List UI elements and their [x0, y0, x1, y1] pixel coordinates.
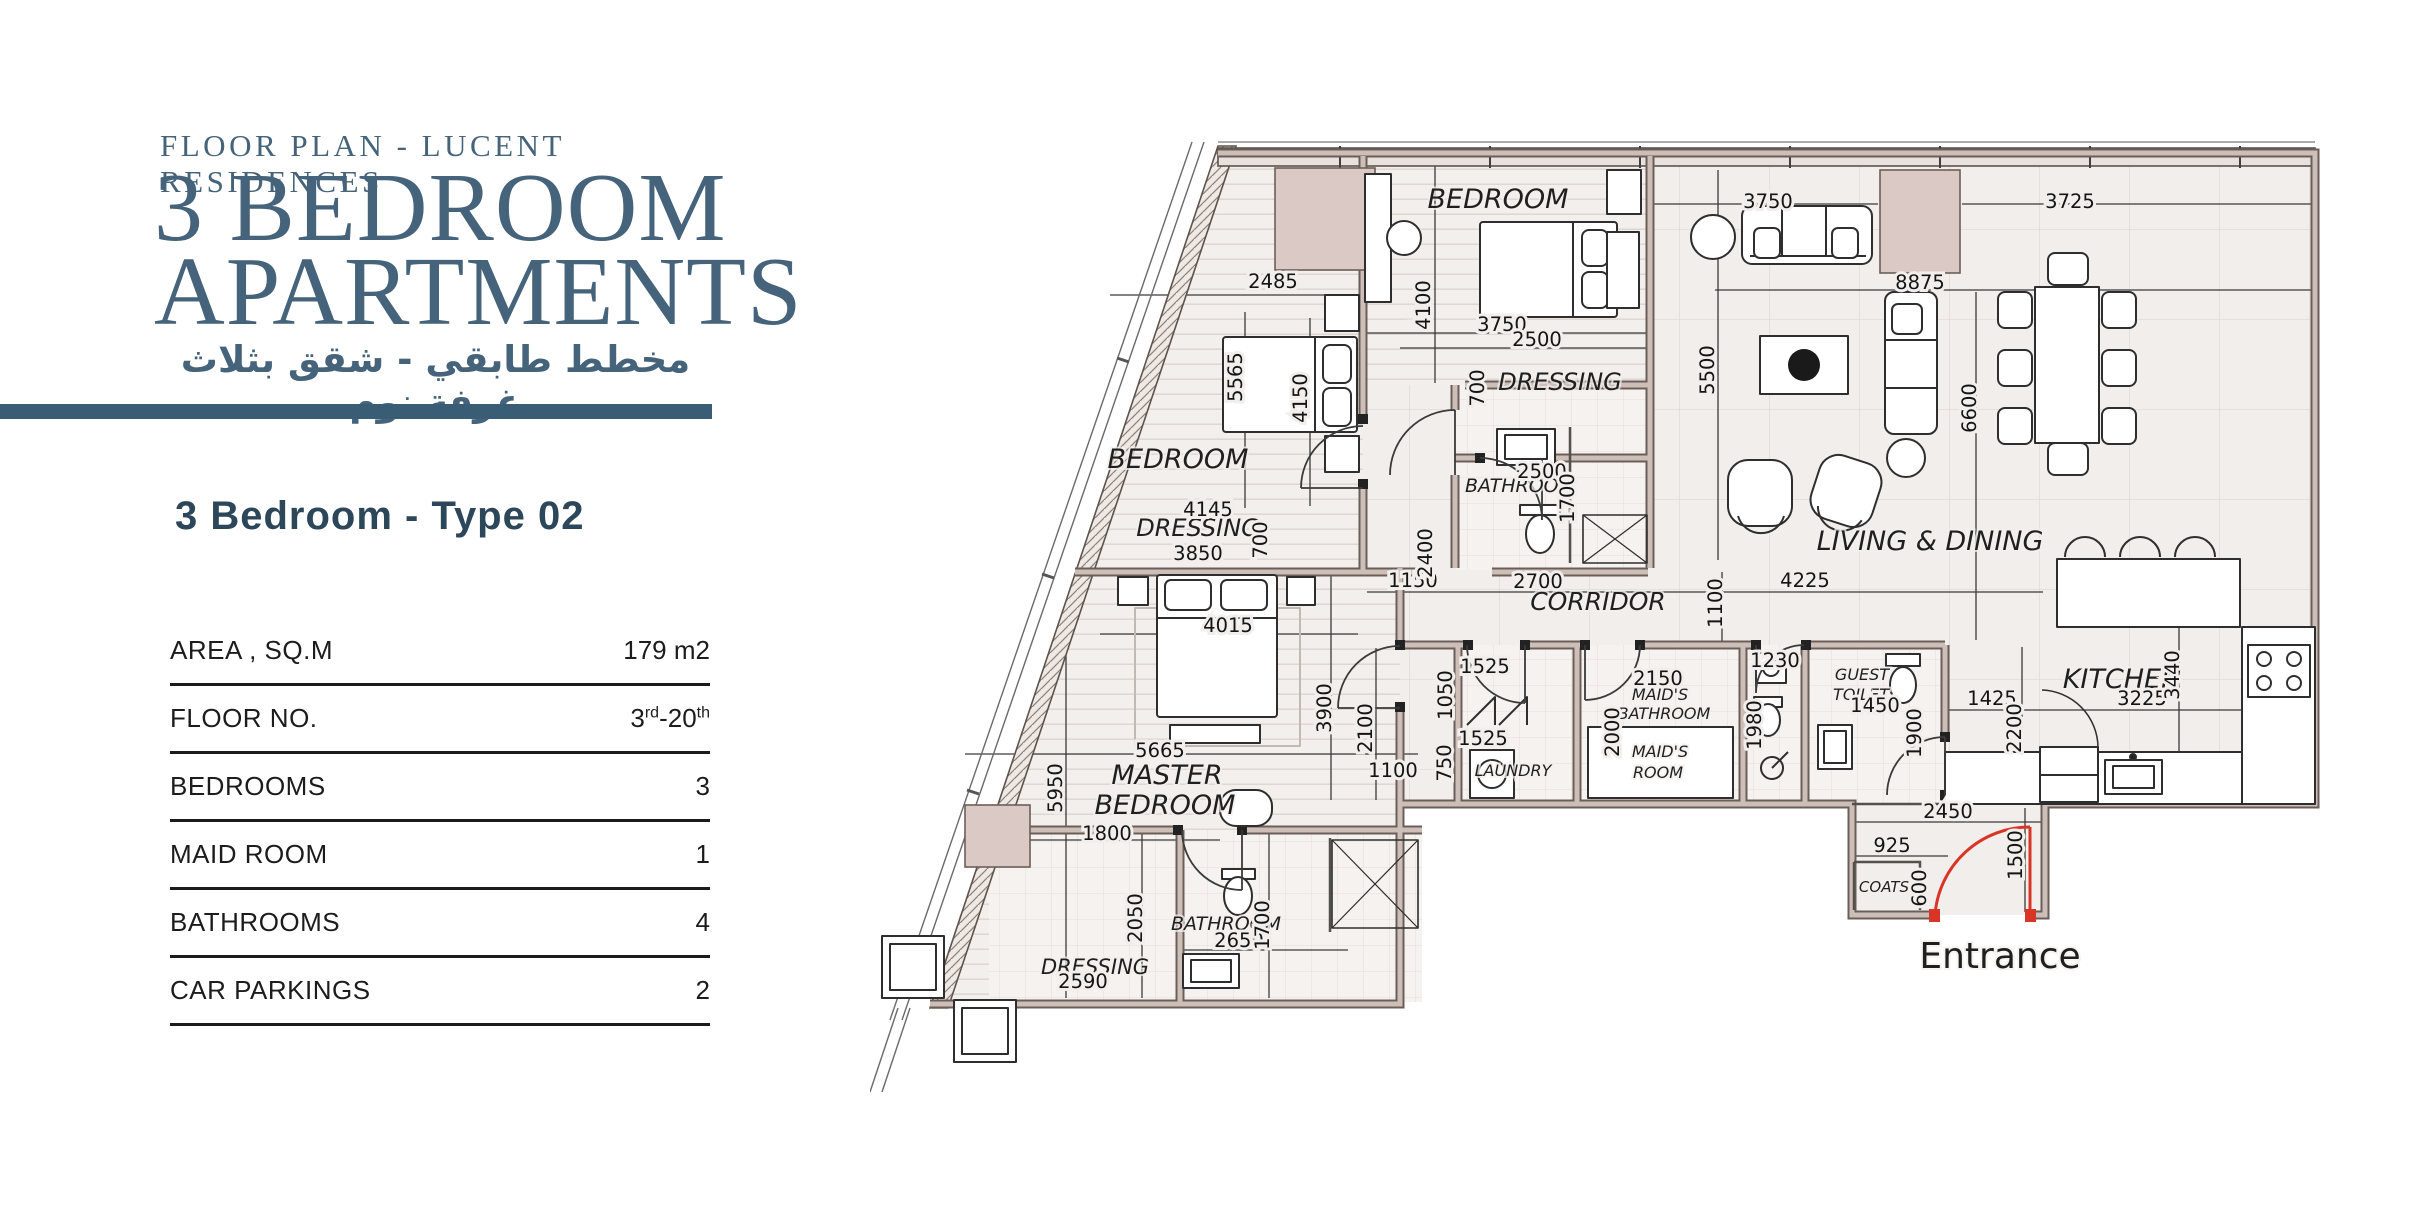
room-label: BEDROOM: [1095, 790, 1236, 821]
dim-label: 2100: [1354, 703, 1377, 753]
room-label: GUEST: [1835, 665, 1890, 684]
room-label: BATHROOM: [1618, 704, 1711, 723]
room-label: MASTER: [1111, 760, 1222, 791]
dim-label: 5565: [1224, 352, 1247, 402]
spec-row-bedrooms: BEDROOMS 3: [170, 754, 710, 822]
spec-row-maidroom: MAID ROOM 1: [170, 822, 710, 890]
spec-value: 4: [696, 907, 710, 938]
dim-label: 4150: [1289, 373, 1312, 423]
dim-label: 2000: [1601, 707, 1624, 757]
spec-value: 1: [696, 839, 710, 870]
spec-label: MAID ROOM: [170, 839, 328, 870]
dim-label: 2485: [1248, 270, 1298, 293]
dim-label: 1230: [1750, 649, 1800, 672]
spec-value: 179 m2: [623, 635, 710, 666]
room-label: LAUNDRY: [1475, 761, 1553, 780]
dim-label: 4015: [1203, 614, 1253, 637]
entrance-label: Entrance: [1919, 936, 2080, 977]
dim-label: 1700: [1556, 473, 1579, 523]
dim-label: 1980: [1743, 700, 1766, 750]
dim-label: 3725: [2045, 190, 2095, 213]
room-label: DRESSING: [1498, 368, 1622, 396]
dim-label: 1050: [1434, 670, 1457, 720]
dim-label: 2500: [1512, 328, 1562, 351]
dim-label: 8875: [1895, 271, 1945, 294]
dim-label: 750: [1433, 744, 1456, 781]
page-title: 3 BEDROOM APARTMENTS: [154, 166, 794, 335]
dim-label: 1525: [1458, 727, 1508, 750]
dim-label: 2400: [1414, 528, 1437, 578]
spec-table: AREA , SQ.M 179 m2 FLOOR NO. 3rd-20th BE…: [170, 618, 710, 1026]
dim-label: 1100: [1704, 578, 1727, 628]
dim-label: 5950: [1044, 763, 1067, 813]
dim-label: 4145: [1183, 498, 1233, 521]
dim-label: 6600: [1958, 383, 1981, 433]
dim-label: 1700: [1251, 900, 1274, 950]
dim-label: 2200: [2003, 703, 2026, 753]
dim-label: 3850: [1173, 542, 1223, 565]
spec-row-parkings: CAR PARKINGS 2: [170, 958, 710, 1026]
accent-divider: [0, 404, 712, 419]
dim-label: 2590: [1058, 970, 1108, 993]
dim-label: 2450: [1923, 800, 1973, 823]
room-label: BEDROOM: [1108, 444, 1249, 475]
dim-label: 3440: [2161, 650, 2184, 700]
room-label: ROOM: [1633, 763, 1683, 782]
spec-label: BATHROOMS: [170, 907, 340, 938]
spec-value: 2: [696, 975, 710, 1006]
spec-row-bathrooms: BATHROOMS 4: [170, 890, 710, 958]
dim-label: 3900: [1313, 683, 1336, 733]
spec-label: BEDROOMS: [170, 771, 326, 802]
dim-label: 3225: [2117, 687, 2167, 710]
page-title-line2: APARTMENTS: [154, 250, 794, 334]
room-label: COATS: [1859, 878, 1910, 896]
dim-label: 4100: [1412, 280, 1435, 330]
dim-label: 2700: [1513, 570, 1563, 593]
dim-label: 1450: [1850, 694, 1900, 717]
dim-label: 1800: [1082, 822, 1132, 845]
spec-label: FLOOR NO.: [170, 703, 318, 734]
dim-label: 5665: [1135, 739, 1185, 762]
room-label: MAID'S: [1632, 742, 1688, 761]
spec-value: 3rd-20th: [630, 703, 710, 734]
spec-row-floor: FLOOR NO. 3rd-20th: [170, 686, 710, 754]
spec-value: 3: [696, 771, 710, 802]
dim-label: 700: [1249, 521, 1272, 558]
unit-type-title: 3 Bedroom - Type 02: [175, 494, 584, 539]
dim-label: 700: [1466, 369, 1489, 406]
dim-label: 600: [1908, 869, 1931, 906]
spec-label: AREA , SQ.M: [170, 635, 333, 666]
dim-label: 5500: [1696, 345, 1719, 395]
dim-label: 1100: [1368, 759, 1418, 782]
dim-label: 4225: [1780, 569, 1830, 592]
room-label: BEDROOM: [1428, 184, 1569, 215]
spec-row-area: AREA , SQ.M 179 m2: [170, 618, 710, 686]
dim-label: 2150: [1633, 667, 1683, 690]
dim-label: 1900: [1903, 708, 1926, 758]
spec-label: CAR PARKINGS: [170, 975, 371, 1006]
room-label: LIVING & DINING: [1817, 526, 2044, 557]
dim-label: 925: [1873, 834, 1910, 857]
dim-label: 2050: [1124, 893, 1147, 943]
dim-label: 1500: [2004, 830, 2027, 880]
dim-label: 3750: [1743, 190, 1793, 213]
dim-label: 1525: [1460, 655, 1510, 678]
floor-plan: BEDROOMBEDROOMDRESSINGBATHROOMDRESSINGLI…: [870, 140, 2330, 1170]
